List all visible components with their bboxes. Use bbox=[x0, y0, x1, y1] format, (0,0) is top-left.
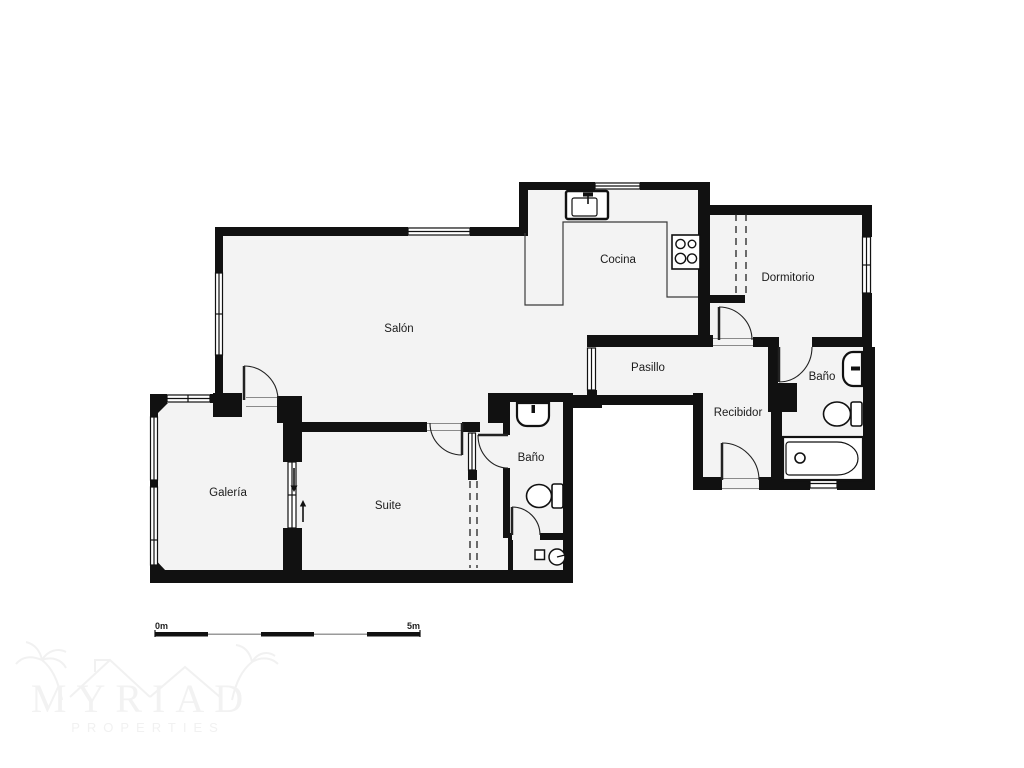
watermark-subtitle: PROPERTIES bbox=[71, 720, 225, 735]
window-kitchen-top bbox=[595, 183, 640, 189]
room-label-dormitorio: Dormitorio bbox=[761, 272, 814, 284]
wall-segment bbox=[768, 347, 778, 383]
washbasin-right-icon bbox=[843, 352, 862, 386]
floor-plan-svg: Salón Cocina Dormitorio Pasillo Baño Rec… bbox=[0, 0, 1024, 768]
room-label-bano-small: Baño bbox=[518, 452, 545, 464]
wall-segment bbox=[508, 540, 513, 572]
room-label-galeria: Galería bbox=[209, 487, 247, 499]
bathtub-icon bbox=[783, 437, 863, 480]
wall-segment bbox=[215, 355, 223, 396]
wall-segment bbox=[863, 347, 875, 490]
room-label-pasillo: Pasillo bbox=[631, 362, 665, 374]
washbasin-small-icon bbox=[517, 403, 549, 426]
wall-segment bbox=[862, 205, 872, 237]
watermark: MYRIAD PROPERTIES bbox=[16, 642, 278, 735]
scale-bar: 0m 5m bbox=[155, 621, 420, 637]
window-dormitorio-right bbox=[863, 237, 871, 293]
wall-segment bbox=[768, 383, 797, 412]
wall-segment bbox=[210, 394, 215, 403]
scale-segment bbox=[314, 634, 367, 636]
kitchen-sink-icon bbox=[566, 191, 608, 219]
scale-segment bbox=[367, 632, 420, 637]
toilet-right-icon bbox=[824, 402, 863, 426]
wall-segment bbox=[462, 422, 480, 432]
wall-segment bbox=[215, 236, 223, 273]
wall-segment bbox=[283, 528, 302, 570]
wall-segment bbox=[587, 335, 713, 347]
wall-segment bbox=[540, 533, 563, 540]
wall-segment bbox=[285, 422, 427, 432]
wall-segment bbox=[693, 477, 722, 490]
room-label-suite: Suite bbox=[375, 500, 401, 512]
wall-segment bbox=[468, 470, 477, 480]
toilet-small-icon bbox=[527, 484, 564, 508]
wall-segment bbox=[519, 182, 595, 190]
wall-segment bbox=[150, 394, 167, 403]
window-salon-left bbox=[216, 273, 223, 355]
window-pasillo-left bbox=[588, 348, 596, 390]
wall-segment bbox=[150, 480, 158, 487]
window-galeria-top bbox=[167, 395, 210, 402]
wall-segment bbox=[215, 227, 408, 236]
wall-segment bbox=[594, 395, 698, 405]
wall-segment bbox=[693, 393, 703, 490]
wall-segment bbox=[771, 412, 782, 477]
wall-segment bbox=[710, 295, 745, 303]
wall-segment bbox=[503, 423, 510, 435]
wall-segment bbox=[283, 396, 302, 462]
window-salon-top bbox=[408, 228, 470, 235]
wall-segment bbox=[150, 570, 573, 583]
wall-segment bbox=[488, 393, 573, 402]
room-label-salon: Salón bbox=[384, 323, 413, 335]
floor-plan-page: Salón Cocina Dormitorio Pasillo Baño Rec… bbox=[0, 0, 1024, 768]
wall-segment bbox=[519, 182, 528, 236]
watermark-title: MYRIAD bbox=[31, 676, 253, 721]
window-galeria-left-lower bbox=[151, 487, 158, 565]
scale-segment bbox=[155, 632, 208, 637]
wall-segment bbox=[213, 393, 242, 417]
wall-segment bbox=[753, 337, 779, 347]
stove-icon bbox=[672, 235, 700, 269]
room-label-bano-right: Baño bbox=[809, 371, 836, 383]
wall-segment bbox=[503, 468, 510, 538]
wall-segment bbox=[710, 205, 872, 215]
scale-end-label: 5m bbox=[407, 621, 420, 631]
window-suite-bath bbox=[469, 433, 476, 470]
window-galeria-left-upper bbox=[151, 417, 158, 480]
wall-segment bbox=[812, 337, 864, 347]
scale-start-label: 0m bbox=[155, 621, 168, 631]
scale-segment bbox=[208, 634, 261, 636]
scale-segment bbox=[261, 632, 314, 637]
room-label-recibidor: Recibidor bbox=[714, 407, 763, 419]
room-label-cocina: Cocina bbox=[600, 254, 636, 266]
